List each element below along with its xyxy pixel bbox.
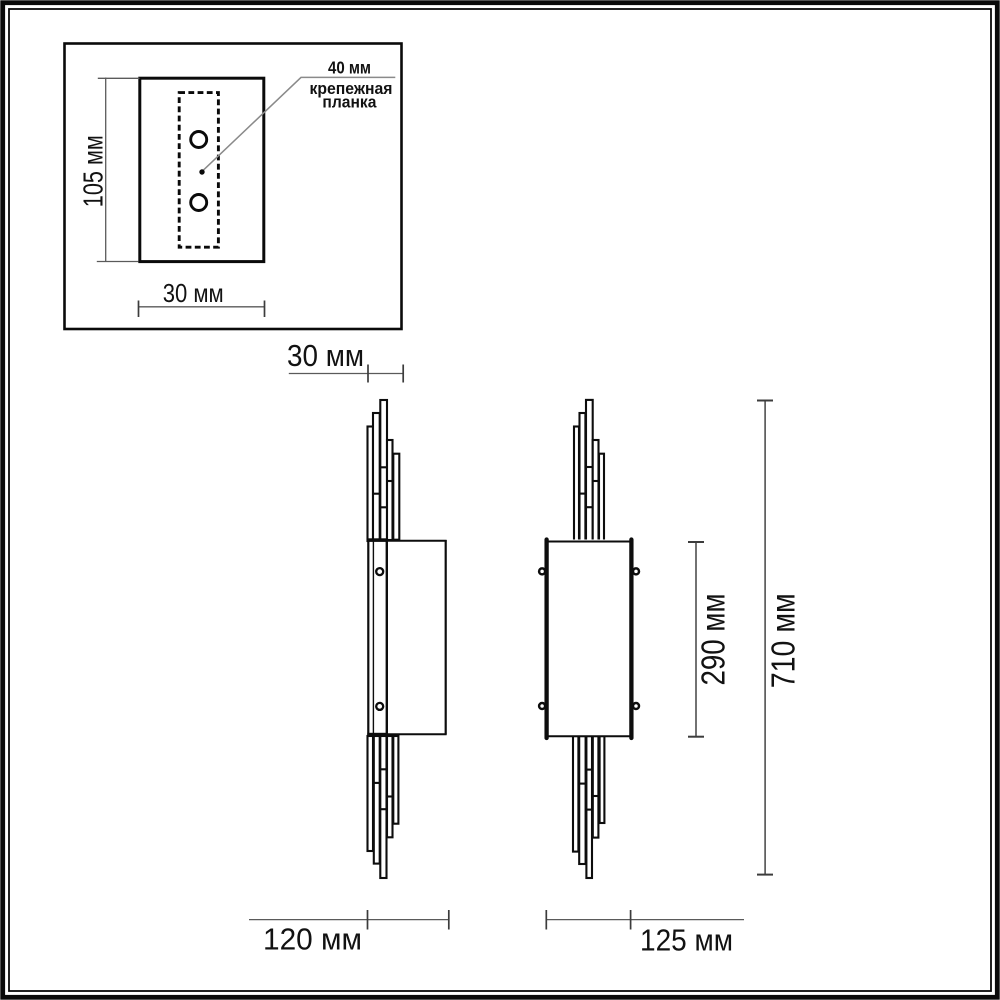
svg-text:710 мм: 710 мм [765,593,802,688]
svg-text:125 мм: 125 мм [640,923,733,958]
svg-text:105 мм: 105 мм [78,135,109,207]
svg-text:290 мм: 290 мм [695,594,732,686]
svg-text:40 мм: 40 мм [328,58,371,78]
svg-text:планка: планка [322,92,376,111]
svg-text:30 мм: 30 мм [163,278,224,308]
svg-text:120 мм: 120 мм [263,922,362,957]
svg-text:30 мм: 30 мм [287,338,364,373]
